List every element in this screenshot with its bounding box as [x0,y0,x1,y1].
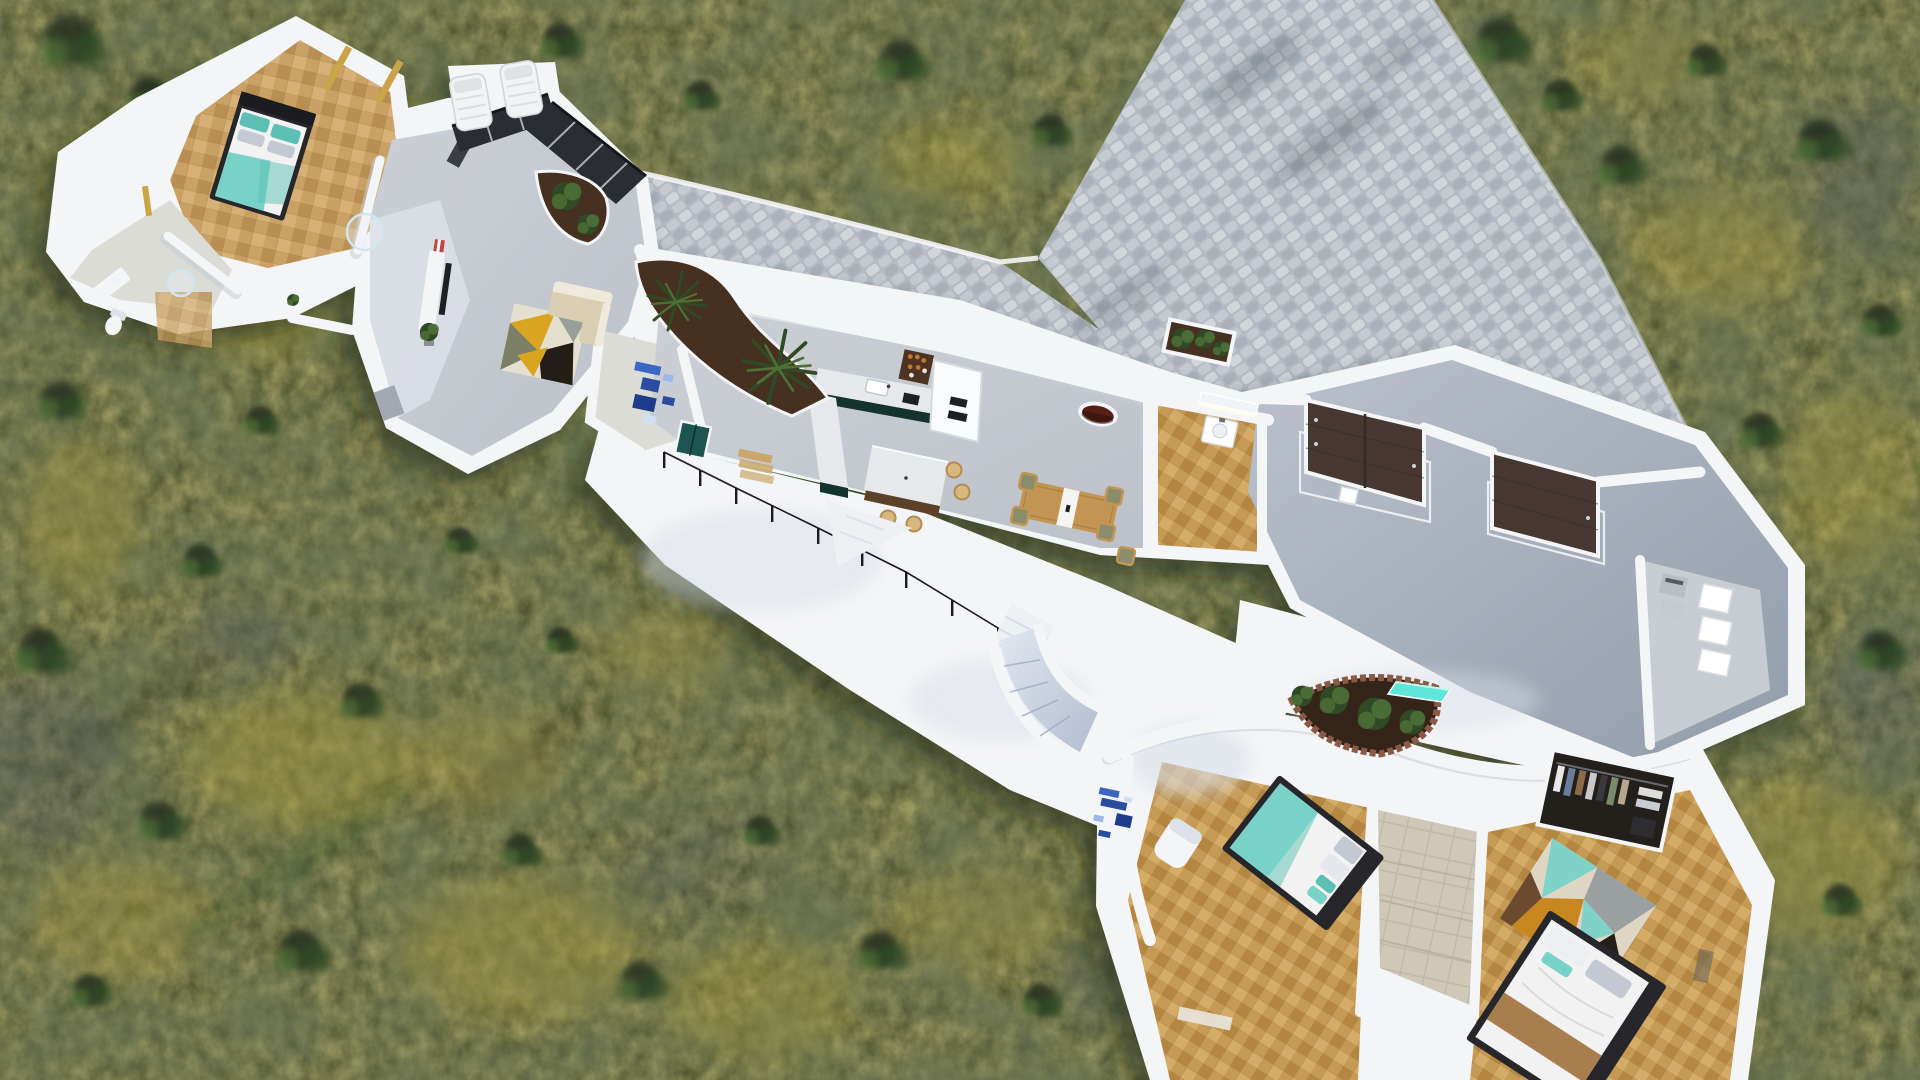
entry-door-teal [675,421,711,459]
render-viewport: Aerial 3D cutaway render of a white sing… [0,0,1920,1080]
round-shower-2 [168,270,194,296]
garage-small-unit [1339,486,1359,504]
round-shower-1 [347,214,383,250]
bottle-shelf [898,349,934,385]
bath-parquet-sliver [155,292,212,348]
villa-aerial-render: Aerial 3D cutaway render of a white sing… [0,0,1920,1080]
fridge-tall-unit [930,360,982,442]
